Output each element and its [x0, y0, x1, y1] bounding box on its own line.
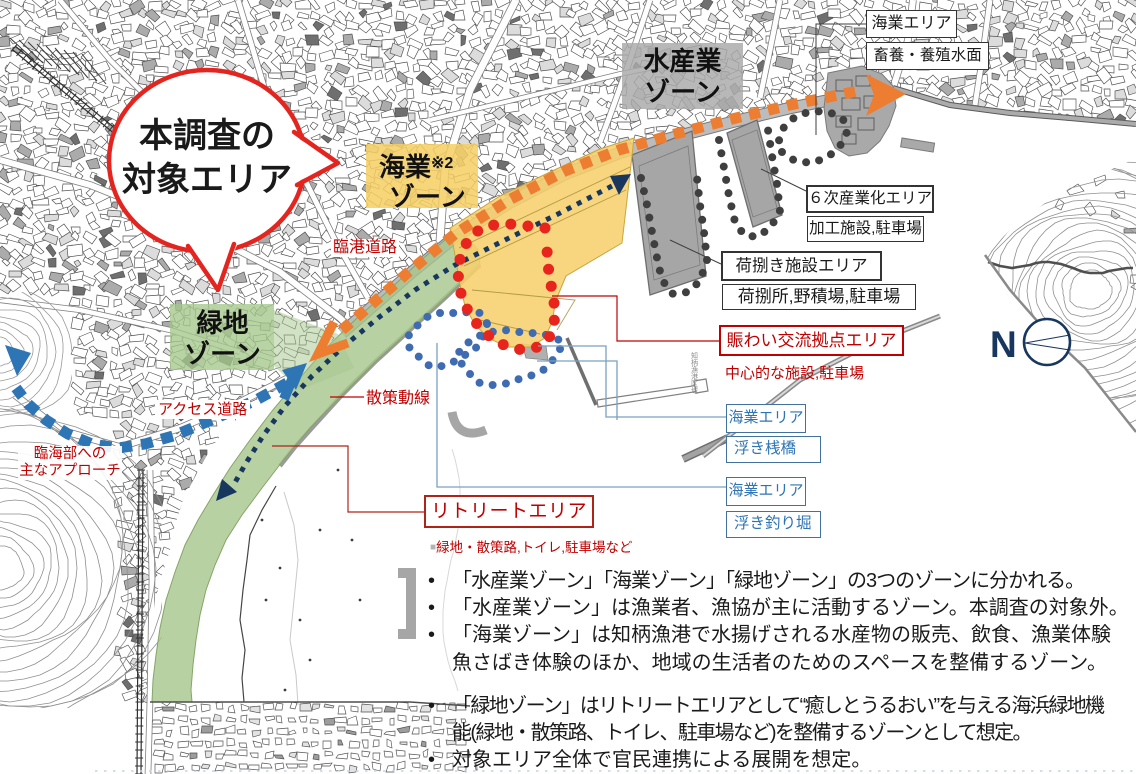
svg-text:N: N: [990, 324, 1017, 365]
svg-text:本調査の: 本調査の: [139, 117, 275, 155]
svg-text:対象エリア: 対象エリア: [122, 161, 292, 199]
svg-text:知柄漁港区域: 知柄漁港区域: [691, 351, 699, 394]
